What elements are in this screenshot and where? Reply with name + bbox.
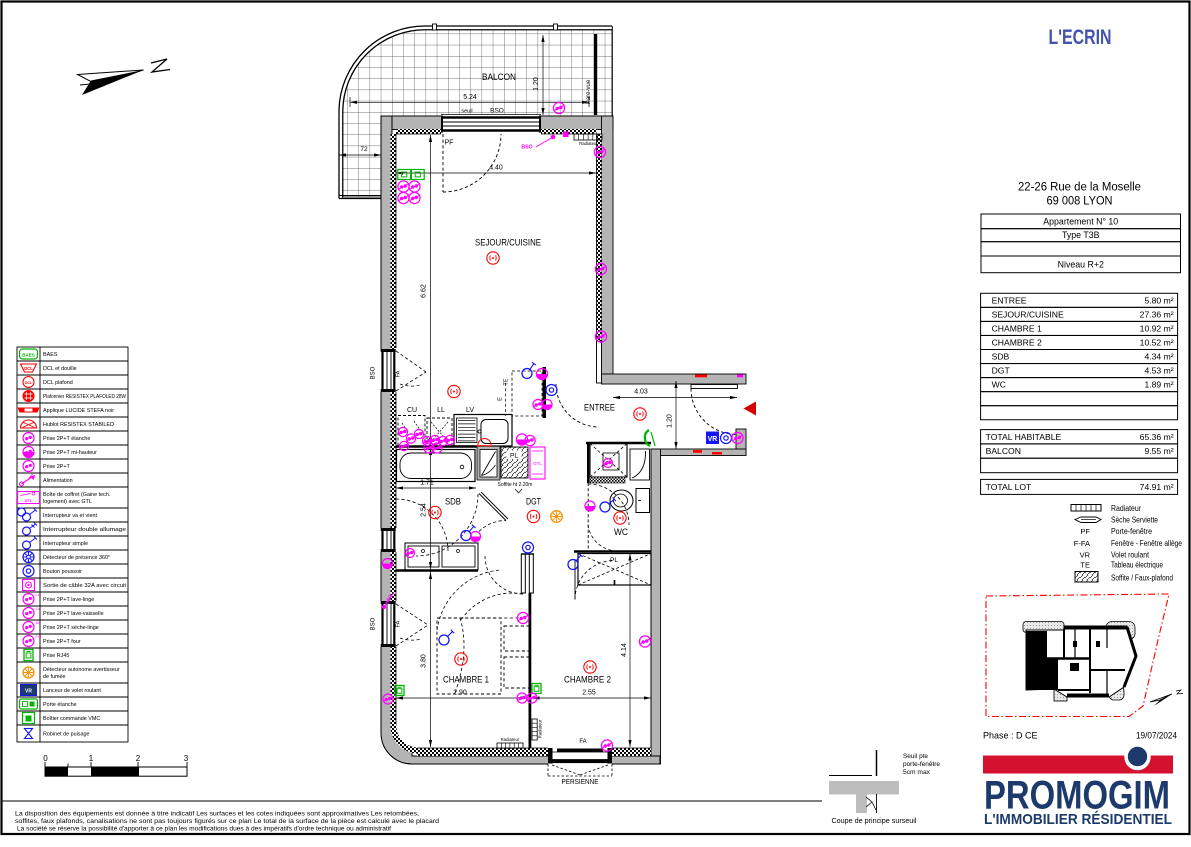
svg-text:Prise 2P+T: Prise 2P+T: [43, 464, 71, 470]
svg-text:CHAMBRE 2: CHAMBRE 2: [564, 675, 611, 686]
svg-text:Porte-fenêtre: Porte-fenêtre: [1111, 527, 1152, 536]
svg-text:10.52 m²: 10.52 m²: [1140, 337, 1174, 347]
svg-text:CHAMBRE 2: CHAMBRE 2: [992, 337, 1042, 347]
svg-text:TOTAL HABITABLE: TOTAL HABITABLE: [986, 432, 1062, 442]
svg-text:BAES: BAES: [43, 352, 58, 358]
svg-text:LL: LL: [36, 592, 41, 597]
svg-text:GTL: GTL: [25, 498, 34, 503]
svg-text:DCL et douille: DCL et douille: [43, 366, 77, 372]
svg-text:Soffite / Faux-plafond: Soffite / Faux-plafond: [1111, 574, 1173, 583]
svg-text:LV: LV: [466, 407, 474, 414]
svg-text:Seuil pte: Seuil pte: [903, 754, 929, 760]
svg-text:Coupe de principe surseuil: Coupe de principe surseuil: [832, 818, 917, 825]
svg-text:1.89 m²: 1.89 m²: [1144, 380, 1173, 390]
svg-text:Alimentation: Alimentation: [43, 478, 73, 484]
svg-text:BALCON: BALCON: [482, 72, 516, 83]
svg-text:ENTREE: ENTREE: [584, 403, 615, 413]
svg-text:logement) avec GTL: logement) avec GTL: [43, 499, 92, 505]
svg-text:Type T3B: Type T3B: [1062, 230, 1100, 240]
svg-text:9.55 m²: 9.55 m²: [1144, 446, 1173, 456]
svg-text:DGT: DGT: [992, 366, 1011, 376]
svg-text:TE: TE: [1080, 561, 1090, 570]
svg-text:LL: LL: [437, 407, 445, 414]
svg-text:seuil: seuil: [461, 109, 472, 115]
svg-text:LV: LV: [36, 606, 41, 611]
svg-text:1.20: 1.20: [533, 77, 540, 91]
svg-text:DCL: DCL: [24, 366, 33, 371]
svg-text:WC: WC: [992, 380, 1006, 390]
svg-text:5.24: 5.24: [463, 94, 477, 101]
svg-text:Prise RJ45: Prise RJ45: [43, 653, 69, 659]
svg-text:4.34 m²: 4.34 m²: [1144, 352, 1173, 362]
svg-text:Tableau électrique: Tableau électrique: [1111, 561, 1163, 570]
svg-text:Détecteur de présence 360°: Détecteur de présence 360°: [43, 555, 110, 561]
svg-text:4.14: 4.14: [621, 643, 628, 657]
svg-text:Sortie de câble 32A avec circu: Sortie de câble 32A avec circuit: [43, 583, 127, 589]
svg-text:2.90: 2.90: [453, 690, 467, 697]
svg-text:DCL: DCL: [25, 381, 33, 385]
svg-text:porte-fenêtre: porte-fenêtre: [903, 762, 941, 768]
svg-text:65.36 m²: 65.36 m²: [1140, 432, 1174, 442]
svg-text:WC: WC: [614, 527, 628, 537]
svg-text:69 008 LYON: 69 008 LYON: [1047, 196, 1113, 208]
svg-text:TE: TE: [504, 378, 510, 385]
svg-text:5.80 m²: 5.80 m²: [1144, 295, 1173, 305]
svg-text:Prise 2P+T sèche-linge: Prise 2P+T sèche-linge: [43, 625, 99, 631]
svg-text:SEJOUR/CUISINE: SEJOUR/CUISINE: [992, 309, 1064, 319]
svg-text:2.54: 2.54: [421, 503, 428, 517]
svg-text:Radiateur: Radiateur: [1111, 504, 1141, 513]
svg-text:Bouton poussoir: Bouton poussoir: [43, 569, 82, 575]
svg-text:Hublot RESISTEX STABILED: Hublot RESISTEX STABILED: [43, 422, 114, 428]
svg-text:DCL plafond: DCL plafond: [43, 380, 73, 386]
svg-text:74.91 m²: 74.91 m²: [1140, 482, 1174, 492]
svg-text:CU: CU: [407, 407, 417, 414]
svg-text:PERSIENNE: PERSIENNE: [562, 777, 599, 786]
svg-text:4.53 m²: 4.53 m²: [1144, 366, 1173, 376]
svg-text:BSO: BSO: [521, 145, 532, 151]
svg-text:Porte étanche: Porte étanche: [43, 702, 77, 708]
svg-text:Lanceur de volet roulant: Lanceur de volet roulant: [43, 688, 101, 694]
svg-text:Radiateur: Radiateur: [579, 141, 598, 146]
svg-text:27.36 m²: 27.36 m²: [1140, 309, 1174, 319]
svg-text:Plafonnier RESISTEX PLAFOLED 2: Plafonnier RESISTEX PLAFOLED 28W: [43, 394, 127, 400]
svg-text:Prise 2P+T lave-linge: Prise 2P+T lave-linge: [43, 597, 94, 603]
svg-text:19/07/2024: 19/07/2024: [1136, 731, 1177, 741]
svg-text:Volet roulant: Volet roulant: [1111, 551, 1150, 560]
svg-text:Fenêtre - Fenêtre allège: Fenêtre - Fenêtre allège: [1111, 539, 1182, 548]
svg-text:SDB: SDB: [992, 352, 1010, 362]
svg-text:F-FA: F-FA: [1074, 539, 1090, 548]
svg-text:BAES: BAES: [22, 353, 35, 358]
svg-text:Applique LUCIDE STEFA noir: Applique LUCIDE STEFA noir: [43, 408, 114, 414]
svg-text:La société se réserve la possi: La société se réserve la possibilité d'a…: [17, 826, 391, 833]
svg-text:CHAMBRE 1: CHAMBRE 1: [443, 675, 489, 686]
svg-text:72: 72: [360, 146, 368, 153]
svg-text:La disposition des équipements: La disposition des équipements est donné…: [15, 811, 419, 818]
svg-text:Radiateur: Radiateur: [538, 719, 543, 738]
svg-text:22-26 Rue de la Moselle: 22-26 Rue de la Moselle: [1018, 182, 1141, 194]
svg-text:BSO: BSO: [371, 617, 377, 630]
svg-text:Détecteur autonome avertisseur: Détecteur autonome avertisseur: [43, 667, 120, 673]
svg-text:L'IMMOBILIER RÉSIDENTIEL: L'IMMOBILIER RÉSIDENTIEL: [984, 811, 1172, 828]
svg-text:CHAMBRE 1: CHAMBRE 1: [992, 323, 1042, 333]
svg-text:Sèche Serviette: Sèche Serviette: [1111, 516, 1158, 525]
svg-text:2: 2: [136, 754, 141, 763]
svg-text:1.71: 1.71: [420, 480, 434, 487]
svg-text:PF: PF: [1080, 527, 1090, 536]
svg-text:L'ECRIN: L'ECRIN: [1049, 26, 1112, 49]
svg-text:Prise 2P+T four: Prise 2P+T four: [43, 639, 81, 645]
svg-text:4.40: 4.40: [489, 165, 503, 172]
svg-text:1.20: 1.20: [667, 414, 674, 428]
svg-text:SDB: SDB: [445, 497, 461, 507]
svg-text:FA: FA: [396, 370, 402, 377]
svg-text:FO: FO: [36, 634, 42, 639]
svg-text:FA: FA: [396, 620, 402, 627]
svg-text:GTL: GTL: [533, 461, 542, 466]
svg-text:ENTREE: ENTREE: [992, 295, 1027, 305]
svg-text:DGT: DGT: [526, 497, 541, 507]
svg-text:0: 0: [43, 754, 48, 763]
svg-text:FA: FA: [579, 739, 586, 745]
svg-text:soffites, faux plafonds, canal: soffites, faux plafonds, canalisations n…: [15, 818, 439, 825]
svg-text:BSO: BSO: [371, 366, 377, 379]
svg-text:VR: VR: [25, 689, 32, 695]
svg-text:BALCON: BALCON: [986, 446, 1021, 456]
svg-text:SL: SL: [36, 620, 42, 625]
svg-text:TOTAL LOT: TOTAL LOT: [986, 482, 1032, 492]
svg-text:Prise 2P+T mi-hauteur: Prise 2P+T mi-hauteur: [43, 450, 97, 456]
svg-text:Interrupteur va et vient: Interrupteur va et vient: [43, 513, 97, 519]
svg-text:Phase : D CE: Phase : D CE: [983, 731, 1038, 741]
svg-text:Interrupteur simple: Interrupteur simple: [43, 541, 88, 547]
svg-text:1: 1: [89, 754, 94, 763]
svg-text:BSO: BSO: [490, 108, 504, 115]
svg-text:Boîtier commande VMC: Boîtier commande VMC: [43, 716, 100, 722]
svg-text:SEJOUR/CUISINE: SEJOUR/CUISINE: [475, 238, 541, 249]
svg-text:Radiateur: Radiateur: [501, 737, 520, 742]
svg-text:Niveau R+2: Niveau R+2: [1058, 259, 1104, 269]
svg-text:3: 3: [184, 754, 189, 763]
svg-text:3.80: 3.80: [421, 654, 428, 668]
svg-text:2.55: 2.55: [582, 690, 596, 697]
svg-text:de fumée: de fumée: [43, 674, 65, 680]
svg-text:Boîte de coffret (Gaine tech.: Boîte de coffret (Gaine tech.: [43, 492, 110, 498]
svg-text:Robinet de puisage: Robinet de puisage: [43, 732, 89, 738]
svg-text:Soffite ht 2.20m: Soffite ht 2.20m: [498, 482, 533, 488]
svg-text:Prise 2P+T étanche: Prise 2P+T étanche: [43, 436, 90, 442]
svg-text:10.92 m²: 10.92 m²: [1140, 323, 1174, 333]
svg-text:PF: PF: [445, 140, 454, 147]
svg-text:5cm max: 5cm max: [903, 770, 930, 776]
svg-text:PL: PL: [510, 453, 518, 460]
svg-text:VR: VR: [1080, 551, 1091, 560]
svg-text:E: E: [498, 397, 504, 401]
svg-text:6.62: 6.62: [421, 284, 428, 298]
svg-text:4.03: 4.03: [634, 389, 648, 396]
svg-text:VR: VR: [708, 436, 718, 443]
svg-text:Interrupteur double allumage: Interrupteur double allumage: [43, 527, 126, 533]
svg-text:Prise 2P+T lave-vaisselle: Prise 2P+T lave-vaisselle: [43, 611, 104, 617]
svg-text:Appartement N° 10: Appartement N° 10: [1043, 216, 1118, 226]
